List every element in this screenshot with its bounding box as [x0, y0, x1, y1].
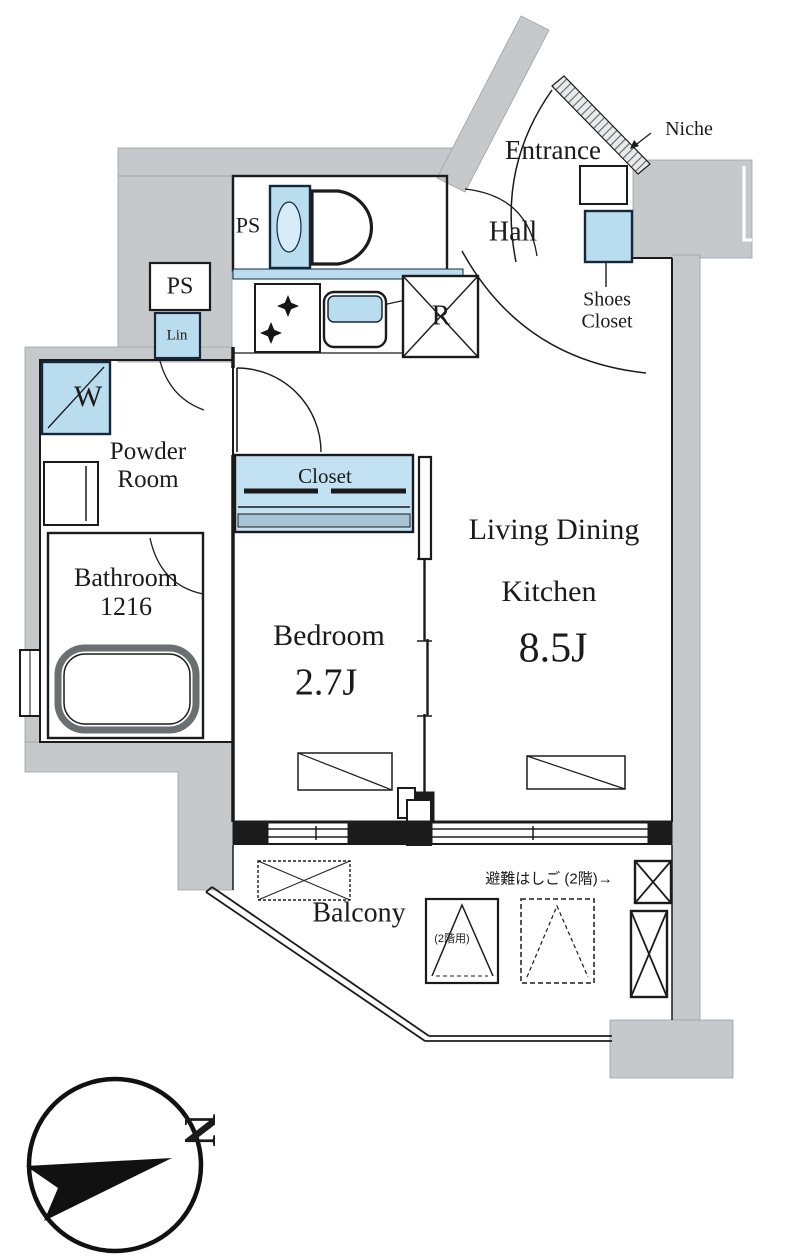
- label-washer: W: [74, 380, 102, 414]
- wall-topright-block: [633, 160, 752, 258]
- label-hall: Hall: [489, 216, 537, 247]
- label-bedroom-size: 2.7J: [295, 662, 357, 705]
- label-powder-room: Powder Room: [110, 438, 186, 494]
- toilet-bowl: [312, 191, 371, 264]
- label-niche: Niche: [665, 118, 713, 140]
- vanity: [44, 462, 98, 525]
- label-closet: Closet: [298, 465, 352, 489]
- label-ldk-line2: Kitchen: [502, 575, 597, 609]
- label-balcony: Balcony: [312, 897, 405, 928]
- label-linen: Lin: [167, 328, 188, 345]
- label-evac-ladder-note: 避難はしご (2階)→: [485, 872, 613, 889]
- niche-box: [580, 166, 627, 204]
- wall-bottom-right-block: [610, 1020, 733, 1078]
- floor-plan: Entrance Niche Hall Shoes Closet PS PS L…: [0, 0, 800, 1258]
- label-ps-shaft: PS: [167, 274, 194, 301]
- label-bathroom: Bathroom 1216: [74, 563, 178, 621]
- floor-plan-drawing: [0, 0, 800, 1258]
- compass: [26, 1079, 201, 1251]
- label-ldk-size: 8.5J: [519, 625, 588, 672]
- label-bedroom: Bedroom: [273, 619, 385, 653]
- shoes-closet-box: [585, 211, 632, 262]
- label-entrance: Entrance: [505, 135, 601, 165]
- wall-top-band: [118, 148, 455, 176]
- label-ps-toilet: PS: [236, 214, 260, 239]
- stove: [255, 284, 320, 352]
- label-evac-hatch-note: (2階用): [434, 933, 469, 945]
- label-refrigerator: R: [432, 300, 451, 331]
- label-ldk-line1: Living Dining: [469, 513, 640, 547]
- label-shoes-closet: Shoes Closet: [581, 289, 632, 334]
- label-compass-north: N: [174, 1113, 226, 1146]
- wall-bottom-left: [25, 742, 233, 890]
- wall-right-band: [672, 255, 700, 1020]
